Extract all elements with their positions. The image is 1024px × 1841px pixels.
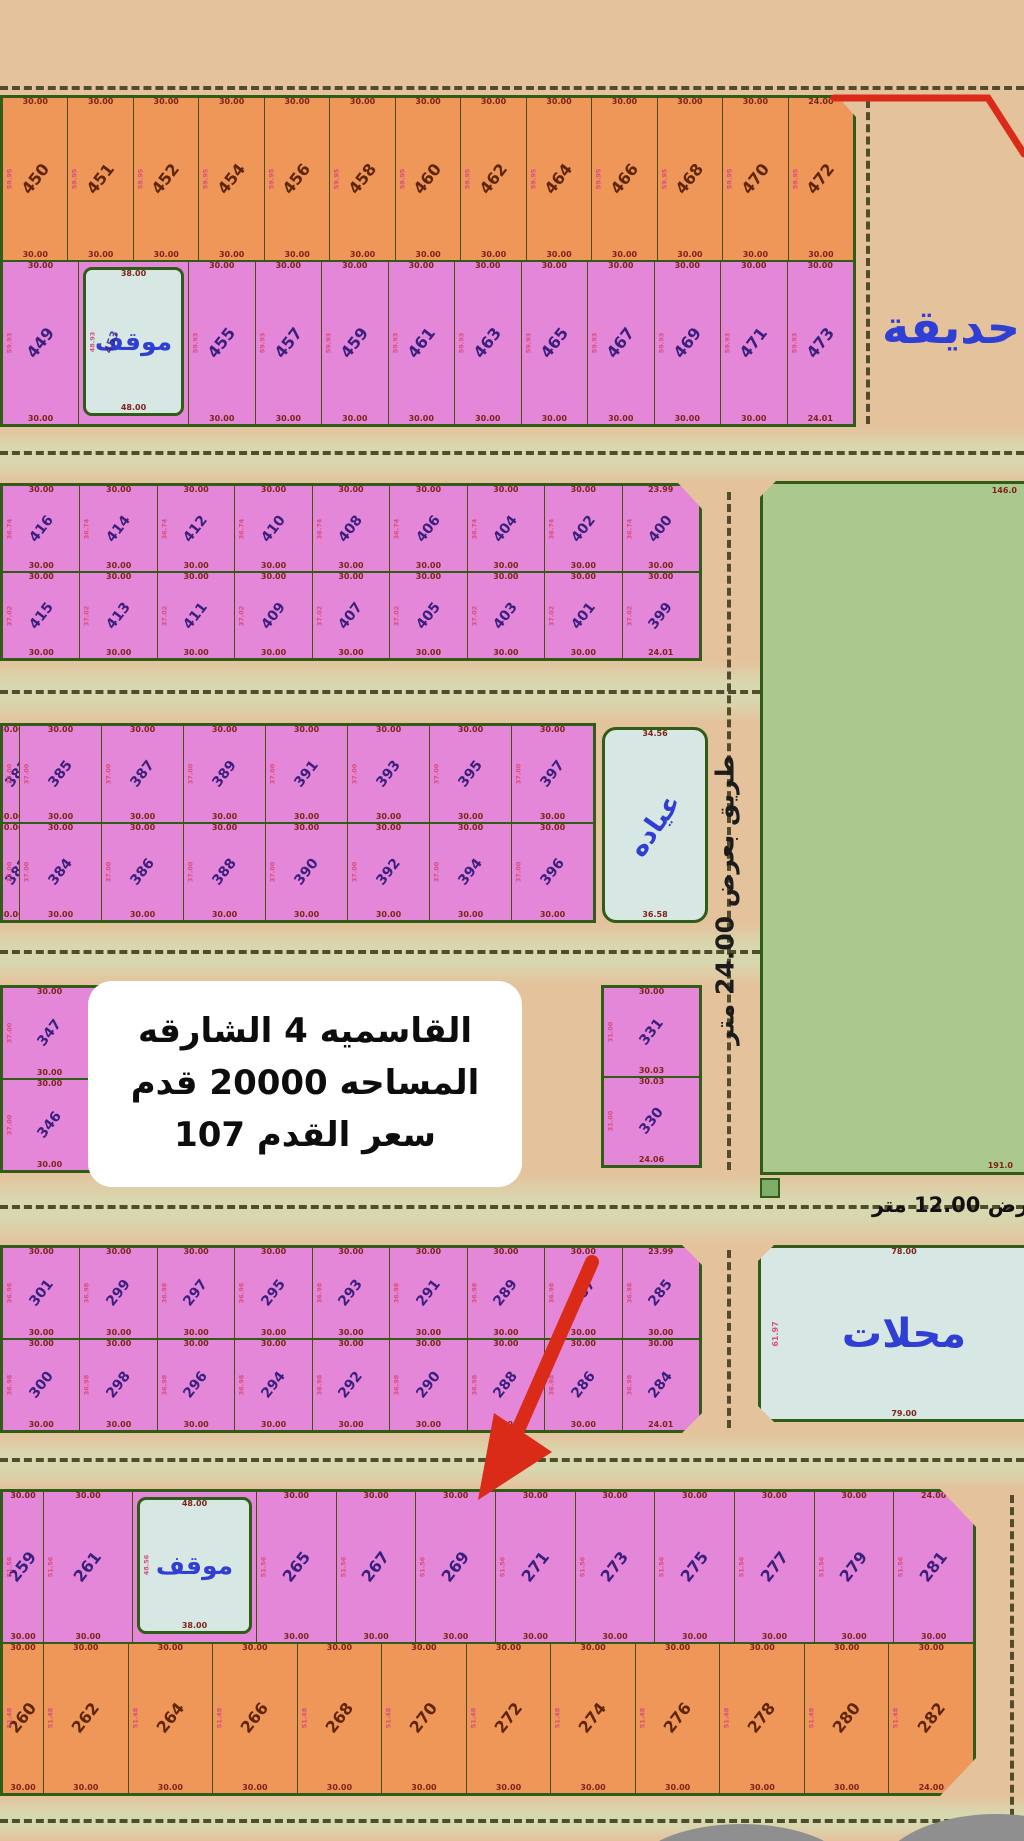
plot-dim-bottom: 30.00 xyxy=(481,251,506,260)
plot-number: 274 xyxy=(576,1700,609,1736)
plot-dim-top: 30.00 xyxy=(75,1492,100,1501)
plot-dim-side: 37.00 xyxy=(104,862,112,883)
plot-dim-side: 59.95 xyxy=(333,169,341,190)
plot-number: 295 xyxy=(259,1277,288,1309)
plot-dim-bottom: 30.00 xyxy=(29,562,54,571)
plot-dim-top: 30.00 xyxy=(338,573,363,582)
plot-dim-side: 36.74 xyxy=(160,518,168,539)
plot-dim-bottom: 30.00 xyxy=(458,911,483,920)
plot-dim-side: 59.95 xyxy=(202,169,210,190)
plot-dim-bottom: 30.00 xyxy=(276,415,301,424)
plot-dim-side: 36.98 xyxy=(547,1283,555,1304)
plot-dim-side: 59.95 xyxy=(464,169,472,190)
plot-dim-bottom: 30.00 xyxy=(342,415,367,424)
plot-dim-side: 59.95 xyxy=(5,169,13,190)
plot-number: 457 xyxy=(272,325,305,361)
row-382-396: 30.0038230.0037.0030.0038430.0037.0030.0… xyxy=(3,824,593,920)
plot-402: 30.0040230.0036.74 xyxy=(545,486,622,571)
plot-dim-side: 36.98 xyxy=(392,1375,400,1396)
plot-number: 414 xyxy=(104,513,133,545)
plot-number: 293 xyxy=(336,1277,365,1309)
plot-dim-bottom: 30.00 xyxy=(28,415,53,424)
plot-number: 451 xyxy=(84,161,117,197)
plot-dim-bottom: 30.00 xyxy=(834,1784,859,1793)
plot-number: 294 xyxy=(259,1369,288,1401)
plot-number: 404 xyxy=(491,513,520,545)
block-449-473: 30.0045030.0059.9530.0045130.0059.9530.0… xyxy=(0,95,856,427)
plot-number: 413 xyxy=(104,600,133,632)
plot-461: 30.0046130.0059.93 xyxy=(389,262,456,424)
plot-dim-bottom: 30.00 xyxy=(542,415,567,424)
plot-dim-top: 30.00 xyxy=(496,1644,521,1653)
plot-dim-top: 30.00 xyxy=(481,98,506,107)
plot-dim-bottom: 30.00 xyxy=(571,1421,596,1430)
top-road-centerline xyxy=(0,86,1024,90)
plot-dim-side: 36.98 xyxy=(238,1375,246,1396)
plot-290: 30.0029030.0036.98 xyxy=(390,1340,467,1430)
plot-number: 469 xyxy=(671,325,704,361)
plot-dim-side: 36.98 xyxy=(315,1375,323,1396)
info-line-2: المساحه 20000 قدم xyxy=(131,1061,480,1107)
plot-dim-side: 36.98 xyxy=(160,1375,168,1396)
plot-number: 459 xyxy=(338,325,371,361)
plot-401: 30.0040130.0037.02 xyxy=(545,573,622,658)
row-285-301: 30.0030130.0036.9830.0029930.0036.9830.0… xyxy=(3,1248,699,1340)
plot-dim-top: 30.00 xyxy=(183,1248,208,1257)
plot-dim-top: 30.00 xyxy=(212,726,237,735)
plot-number: 389 xyxy=(210,758,239,790)
plot-dim-side: 36.98 xyxy=(5,1375,13,1396)
plot-dim-side: 36.98 xyxy=(238,1283,246,1304)
plot-dim-side: 59.93 xyxy=(524,333,532,354)
plot-347: 30.0034730.0037.00 xyxy=(3,988,96,1078)
plot-465: 30.0046530.0059.93 xyxy=(522,262,589,424)
plot-number: 273 xyxy=(598,1549,631,1585)
plot-dim-top: 30.00 xyxy=(540,824,565,833)
shops-dim-left: 61.97 xyxy=(771,1321,780,1346)
plot-number: 466 xyxy=(608,161,641,197)
plot-number: 267 xyxy=(359,1549,392,1585)
plot-number: 467 xyxy=(604,325,637,361)
row-330: 30.0333024.0631.00 xyxy=(604,1078,699,1166)
row-259-281: 30.0025930.0051.5630.0026130.0051.5648.0… xyxy=(3,1492,973,1644)
plot-dim-side: 37.00 xyxy=(186,862,194,883)
plot-471: 30.0047130.0059.93 xyxy=(721,262,788,424)
plot-286: 30.0028630.0036.98 xyxy=(545,1340,622,1430)
plot-dim-side: 37.00 xyxy=(5,1023,13,1044)
plot-dim-side: 59.95 xyxy=(595,169,603,190)
plot-dim-side: 37.00 xyxy=(5,764,13,785)
plot-dim-side: 51.48 xyxy=(638,1708,646,1729)
shops-dim-top: 78.00 xyxy=(891,1248,916,1257)
plot-dim-top: 30.00 xyxy=(88,98,113,107)
plot-dim-side: 51.56 xyxy=(46,1556,54,1577)
plot-dim-top: 30.00 xyxy=(749,1644,774,1653)
clinic-block: 34.56 عياده 36.58 xyxy=(602,727,708,923)
plot-dim-top: 30.00 xyxy=(48,824,73,833)
plot-number: 282 xyxy=(915,1700,948,1736)
plot-285: 23.9928530.0036.98 xyxy=(623,1248,699,1338)
plot-dim-side: 51.56 xyxy=(578,1556,586,1577)
plot-280: 30.0028030.0051.48 xyxy=(805,1644,890,1794)
plot-dim-top: 30.00 xyxy=(350,98,375,107)
plot-dim-top: 30.00 xyxy=(130,824,155,833)
block-259-282: 30.0025930.0051.5630.0026130.0051.5648.0… xyxy=(0,1489,976,1796)
info-line-3: سعر القدم 107 xyxy=(174,1113,436,1159)
plot-dim-bottom: 30.00 xyxy=(3,813,20,822)
plot-291: 30.0029130.0036.98 xyxy=(390,1248,467,1338)
plot-412: 30.0041230.0036.74 xyxy=(158,486,235,571)
plot-270: 30.0027030.0051.48 xyxy=(382,1644,467,1794)
plot-number: 299 xyxy=(104,1277,133,1309)
plot-dim-bottom: 30.00 xyxy=(183,1421,208,1430)
plot-dim-side: 59.93 xyxy=(723,333,731,354)
plot-dim-top: 23.99 xyxy=(648,1248,673,1257)
plot-466: 30.0046630.0059.95 xyxy=(592,98,657,260)
plot-dim-side: 36.98 xyxy=(470,1375,478,1396)
plot-dim-top: 30.00 xyxy=(23,98,48,107)
plot-dim-bottom: 30.00 xyxy=(130,813,155,822)
plot-number: 271 xyxy=(519,1549,552,1585)
plot-dim-top: 30.00 xyxy=(183,486,208,495)
plot-415: 30.0041530.0037.02 xyxy=(3,573,80,658)
plot-dim-side: 59.95 xyxy=(725,169,733,190)
plot-409: 30.0040930.0037.02 xyxy=(235,573,312,658)
plot-number: 472 xyxy=(804,161,837,197)
plot-dim-top: 30.00 xyxy=(338,1248,363,1257)
road-4-centerline xyxy=(0,1205,1024,1209)
plot-dim-top: 30.00 xyxy=(73,1644,98,1653)
plot-301: 30.0030130.0036.98 xyxy=(3,1248,80,1338)
plot-275: 30.0027530.0051.56 xyxy=(655,1492,735,1642)
plot-dim-bottom: 30.00 xyxy=(409,415,434,424)
plot-dim-top: 30.00 xyxy=(106,1248,131,1257)
plot-dim-bottom: 30.00 xyxy=(921,1633,946,1642)
plot-number: 393 xyxy=(374,758,403,790)
plot-408: 30.0040830.0036.74 xyxy=(313,486,390,571)
plot-405: 30.0040530.0037.02 xyxy=(390,573,467,658)
plot-dim-top: 30.00 xyxy=(284,1492,309,1501)
plot-dim-bottom: 30.00 xyxy=(242,1784,267,1793)
plot-dim-top: 30.00 xyxy=(602,1492,627,1501)
plot-dim-side: 37.00 xyxy=(432,764,440,785)
row-449-473: 30.0044930.0059.9338.00موقف45348.0048.93… xyxy=(3,262,853,424)
plot-number: 397 xyxy=(538,758,567,790)
plot-dim-bottom: 30.00 xyxy=(496,1784,521,1793)
plot-411: 30.0041130.0037.02 xyxy=(158,573,235,658)
plot-number: 465 xyxy=(538,325,571,361)
plot-number: 281 xyxy=(917,1549,950,1585)
plot-dim-bottom: 30.00 xyxy=(88,251,113,260)
plot-dim-side: 59.95 xyxy=(136,169,144,190)
plot-dim-bottom: 30.00 xyxy=(294,911,319,920)
plot-dim-bottom: 30.00 xyxy=(675,415,700,424)
plot-393: 30.0039330.0037.00 xyxy=(348,726,430,822)
road-3-centerline xyxy=(0,950,760,954)
plot-number: 280 xyxy=(830,1700,863,1736)
plot-dim-side: 59.95 xyxy=(791,169,799,190)
plot-number: 401 xyxy=(569,600,598,632)
plot-dim-top: 30.00 xyxy=(416,573,441,582)
plot-451: 30.0045130.0059.95 xyxy=(68,98,133,260)
plot-463: 30.0046330.0059.93 xyxy=(455,262,522,424)
plot-dim-bottom: 30.00 xyxy=(682,1633,707,1642)
plot-number: 400 xyxy=(646,513,675,545)
plot-dim-top: 30.00 xyxy=(130,726,155,735)
plot-464: 30.0046430.0059.95 xyxy=(527,98,592,260)
plot-dim-bottom: 30.00 xyxy=(612,251,637,260)
plot-dim-side: 59.93 xyxy=(391,333,399,354)
parking-block: 48.00موقف38.0048.56 xyxy=(137,1497,252,1634)
road-12m-label: بعرض 12.00 متر xyxy=(872,1193,1024,1217)
plot-391: 30.0039130.0037.00 xyxy=(266,726,348,822)
plot-number: 450 xyxy=(19,161,52,197)
parking-dim-bottom: 38.00 xyxy=(182,1622,207,1631)
parking-block: 38.00موقف45348.0048.93 xyxy=(83,267,184,416)
plot-number: 276 xyxy=(661,1700,694,1736)
row-383-397: 30.0038330.0037.0030.0038530.0037.0030.0… xyxy=(3,726,593,824)
plot-dim-bottom: 30.00 xyxy=(261,649,286,658)
plot-number: 279 xyxy=(837,1549,870,1585)
block-382-397: 30.0038330.0037.0030.0038530.0037.0030.0… xyxy=(0,723,596,923)
plot-number: 402 xyxy=(569,513,598,545)
plot-dim-top: 30.00 xyxy=(294,726,319,735)
plot-468: 30.0046830.0059.95 xyxy=(658,98,723,260)
plot-dim-bottom: 30.00 xyxy=(106,1329,131,1338)
plot-dim-top: 30.00 xyxy=(327,1644,352,1653)
plot-number: 270 xyxy=(407,1700,440,1736)
plot-dim-side: 59.93 xyxy=(5,333,13,354)
plot-dim-bottom: 30.00 xyxy=(571,562,596,571)
plot-dim-side: 51.48 xyxy=(215,1708,223,1729)
plot-385: 30.0038530.0037.00 xyxy=(20,726,102,822)
plot-dim-bottom: 30.00 xyxy=(608,415,633,424)
plot-387: 30.0038730.0037.00 xyxy=(102,726,184,822)
road-right-of-bottom-block-centerline xyxy=(1010,1495,1014,1841)
plot-dim-top: 30.00 xyxy=(363,1492,388,1501)
plot-dim-side: 36.98 xyxy=(160,1283,168,1304)
plot-number: 410 xyxy=(259,513,288,545)
plot-number: 416 xyxy=(27,513,56,545)
plot-388: 30.0038830.0037.00 xyxy=(184,824,266,920)
plot-dim-top: 30.00 xyxy=(409,262,434,271)
plot-dim-top: 23.99 xyxy=(648,486,673,495)
plot-264: 30.0026430.0051.48 xyxy=(129,1644,214,1794)
plot-dim-top: 30.00 xyxy=(338,486,363,495)
plot-number: 464 xyxy=(542,161,575,197)
plot-dim-bottom: 30.00 xyxy=(327,1784,352,1793)
plot-390: 30.0039030.0037.00 xyxy=(266,824,348,920)
plot-dim-top: 30.00 xyxy=(29,573,54,582)
plot-dim-top: 30.00 xyxy=(276,262,301,271)
plot-number: 456 xyxy=(281,161,314,197)
plot-number: 265 xyxy=(280,1549,313,1585)
plot-dim-bottom: 30.00 xyxy=(106,1421,131,1430)
plot-number: 269 xyxy=(439,1549,472,1585)
plot-454: 30.0045430.0059.95 xyxy=(199,98,264,260)
plot-dim-top: 30.00 xyxy=(416,1248,441,1257)
plot-number: 399 xyxy=(646,600,675,632)
plot-number: 384 xyxy=(46,856,75,888)
plot-dim-side: 51.48 xyxy=(807,1708,815,1729)
plot-472: 24.0047230.0059.95 xyxy=(789,98,853,260)
garden-dim-bottom: 191.0 xyxy=(988,1161,1013,1170)
plot-dim-bottom: 30.00 xyxy=(29,1329,54,1338)
plot-number: 454 xyxy=(215,161,248,197)
plot-dim-top: 30.00 xyxy=(919,1644,944,1653)
plot-dim-top: 30.00 xyxy=(458,824,483,833)
plot-dim-side: 51.56 xyxy=(897,1556,905,1577)
road-1 xyxy=(0,427,1024,483)
row-331: 30.0033130.0331.00 xyxy=(604,988,699,1078)
plot-dim-side: 31.00 xyxy=(606,1111,614,1132)
plot-dim-bottom: 30.00 xyxy=(338,1329,363,1338)
plot-number: 463 xyxy=(471,325,504,361)
plot-dim-bottom: 30.00 xyxy=(284,1633,309,1642)
plot-number: 405 xyxy=(414,600,443,632)
plot-267: 30.0026730.0051.56 xyxy=(337,1492,417,1642)
plot-dim-top: 30.00 xyxy=(37,988,62,997)
row-346: 30.0034630.0037.00 xyxy=(3,1080,96,1170)
plot-dim-bottom: 30.00 xyxy=(48,911,73,920)
plot-dim-bottom: 30.00 xyxy=(10,1784,35,1793)
plot-dim-side: 51.48 xyxy=(46,1708,54,1729)
plot-number: 388 xyxy=(210,856,239,888)
plot-dim-top: 30.00 xyxy=(154,98,179,107)
plot-dim-bottom: 30.00 xyxy=(376,911,401,920)
plot-dim-side: 37.00 xyxy=(186,764,194,785)
plot-dim-side: 59.93 xyxy=(457,333,465,354)
plot-dim-bottom: 30.00 xyxy=(183,562,208,571)
plot-dim-side: 36.98 xyxy=(83,1375,91,1396)
parking-cell: 38.00موقف45348.0048.93 xyxy=(79,262,189,424)
plot-dim-top: 30.00 xyxy=(612,98,637,107)
plot-number: 392 xyxy=(374,856,403,888)
plot-dim-bottom: 30.00 xyxy=(338,1421,363,1430)
plot-dim-bottom: 30.00 xyxy=(29,1421,54,1430)
plot-346: 30.0034630.0037.00 xyxy=(3,1080,96,1170)
plot-dim-side: 37.00 xyxy=(514,764,522,785)
plot-289: 30.0028930.0036.98 xyxy=(468,1248,545,1338)
plot-number: 300 xyxy=(27,1369,56,1401)
plot-269: 30.0026930.0051.56 xyxy=(416,1492,496,1642)
plot-dim-bottom: 30.00 xyxy=(10,1633,35,1642)
row-347: 30.0034730.0037.00 xyxy=(3,988,96,1080)
plot-dim-side: 36.98 xyxy=(392,1283,400,1304)
plot-288: 30.0028830.0036.98 xyxy=(468,1340,545,1430)
plot-dim-bottom: 30.00 xyxy=(29,649,54,658)
plot-dim-side: 37.00 xyxy=(432,862,440,883)
plot-470: 30.0047030.0059.95 xyxy=(723,98,788,260)
row-400-416: 30.0041630.0036.7430.0041430.0036.7430.0… xyxy=(3,486,699,573)
plot-dim-side: 59.93 xyxy=(191,333,199,354)
plot-296: 30.0029630.0036.98 xyxy=(158,1340,235,1430)
plot-number: 297 xyxy=(182,1277,211,1309)
plot-395: 30.0039530.0037.00 xyxy=(430,726,512,822)
plot-dim-top: 30.00 xyxy=(294,824,319,833)
plot-dim-top: 30.03 xyxy=(639,1078,664,1087)
plot-dim-top: 30.00 xyxy=(841,1492,866,1501)
plot-dim-side: 36.98 xyxy=(547,1375,555,1396)
parking-dim-side: 48.56 xyxy=(142,1555,150,1576)
shops-block: 78.00 محلات 79.00 61.97 51.00 xyxy=(758,1245,1024,1422)
plot-261: 30.0026130.0051.56 xyxy=(44,1492,133,1642)
plot-dim-side: 37.00 xyxy=(268,862,276,883)
plot-dim-bottom: 30.00 xyxy=(154,251,179,260)
plot-294: 30.0029430.0036.98 xyxy=(235,1340,312,1430)
plot-449: 30.0044930.0059.93 xyxy=(3,262,79,424)
plot-460: 30.0046030.0059.95 xyxy=(396,98,461,260)
plot-287: 30.0028730.0036.98 xyxy=(545,1248,622,1338)
plot-number: 331 xyxy=(637,1016,666,1048)
plot-300: 30.0030030.0036.98 xyxy=(3,1340,80,1430)
plot-dim-bottom: 30.00 xyxy=(376,813,401,822)
plot-dim-side: 59.95 xyxy=(71,169,79,190)
plot-dim-bottom: 30.00 xyxy=(37,1161,62,1170)
plot-dim-top: 30.00 xyxy=(762,1492,787,1501)
plot-dim-side: 31.00 xyxy=(606,1021,614,1042)
parking-cell: 48.00موقف38.0048.56 xyxy=(133,1492,257,1642)
plot-number: 458 xyxy=(346,161,379,197)
plot-dim-top: 30.00 xyxy=(415,98,440,107)
plot-dim-side: 51.56 xyxy=(658,1556,666,1577)
plot-384: 30.0038430.0037.00 xyxy=(20,824,102,920)
plot-number: 286 xyxy=(569,1369,598,1401)
road-6-centerline xyxy=(0,1819,1024,1823)
plot-dim-bottom: 30.00 xyxy=(106,649,131,658)
clinic-dim-top: 34.56 xyxy=(642,730,667,739)
plot-dim-top: 30.00 xyxy=(648,1340,673,1349)
parking-dim-side: 48.93 xyxy=(88,331,96,352)
plot-dim-side: 59.93 xyxy=(324,333,332,354)
plot-dim-side: 51.56 xyxy=(817,1556,825,1577)
plot-number: 261 xyxy=(71,1549,104,1585)
plot-dim-bottom: 24.00 xyxy=(919,1784,944,1793)
plot-number: 284 xyxy=(646,1369,675,1401)
plot-dim-side: 36.74 xyxy=(5,518,13,539)
plot-number: 391 xyxy=(292,758,321,790)
block-330-331: 30.0033130.0331.00 30.0333024.0631.00 xyxy=(601,985,702,1168)
plot-dim-side: 37.02 xyxy=(83,605,91,626)
plot-dim-side: 37.00 xyxy=(268,764,276,785)
plot-dim-bottom: 30.00 xyxy=(219,251,244,260)
plot-281: 24.0028130.0051.56 xyxy=(894,1492,973,1642)
plot-dim-top: 30.00 xyxy=(29,486,54,495)
plot-map-canvas: 30.0045030.0059.9530.0045130.0059.9530.0… xyxy=(0,0,1024,1841)
plot-dim-top: 30.00 xyxy=(540,726,565,735)
road-2-centerline xyxy=(0,690,760,694)
plot-dim-side: 37.00 xyxy=(104,764,112,785)
plot-number: 330 xyxy=(637,1105,666,1137)
plot-number: 266 xyxy=(238,1700,271,1736)
plot-dim-bottom: 30.00 xyxy=(75,1633,100,1642)
plot-452: 30.0045230.0059.95 xyxy=(134,98,199,260)
plot-dim-bottom: 30.00 xyxy=(209,415,234,424)
plot-dim-side: 51.56 xyxy=(737,1556,745,1577)
plot-number: 285 xyxy=(646,1277,675,1309)
plot-dim-side: 36.74 xyxy=(392,518,400,539)
plot-dim-side: 37.02 xyxy=(625,605,633,626)
plot-dim-top: 30.00 xyxy=(475,262,500,271)
parking-dim-bottom: 48.00 xyxy=(121,404,146,413)
plot-399: 30.0039924.0137.02 xyxy=(623,573,699,658)
block-399-416: 30.0041630.0036.7430.0041430.0036.7430.0… xyxy=(0,483,702,661)
plot-dim-top: 30.00 xyxy=(3,824,20,833)
plot-dim-side: 51.48 xyxy=(384,1708,392,1729)
plot-dim-top: 30.00 xyxy=(493,1248,518,1257)
plot-dim-side: 36.74 xyxy=(625,518,633,539)
plot-dim-top: 30.00 xyxy=(28,262,53,271)
